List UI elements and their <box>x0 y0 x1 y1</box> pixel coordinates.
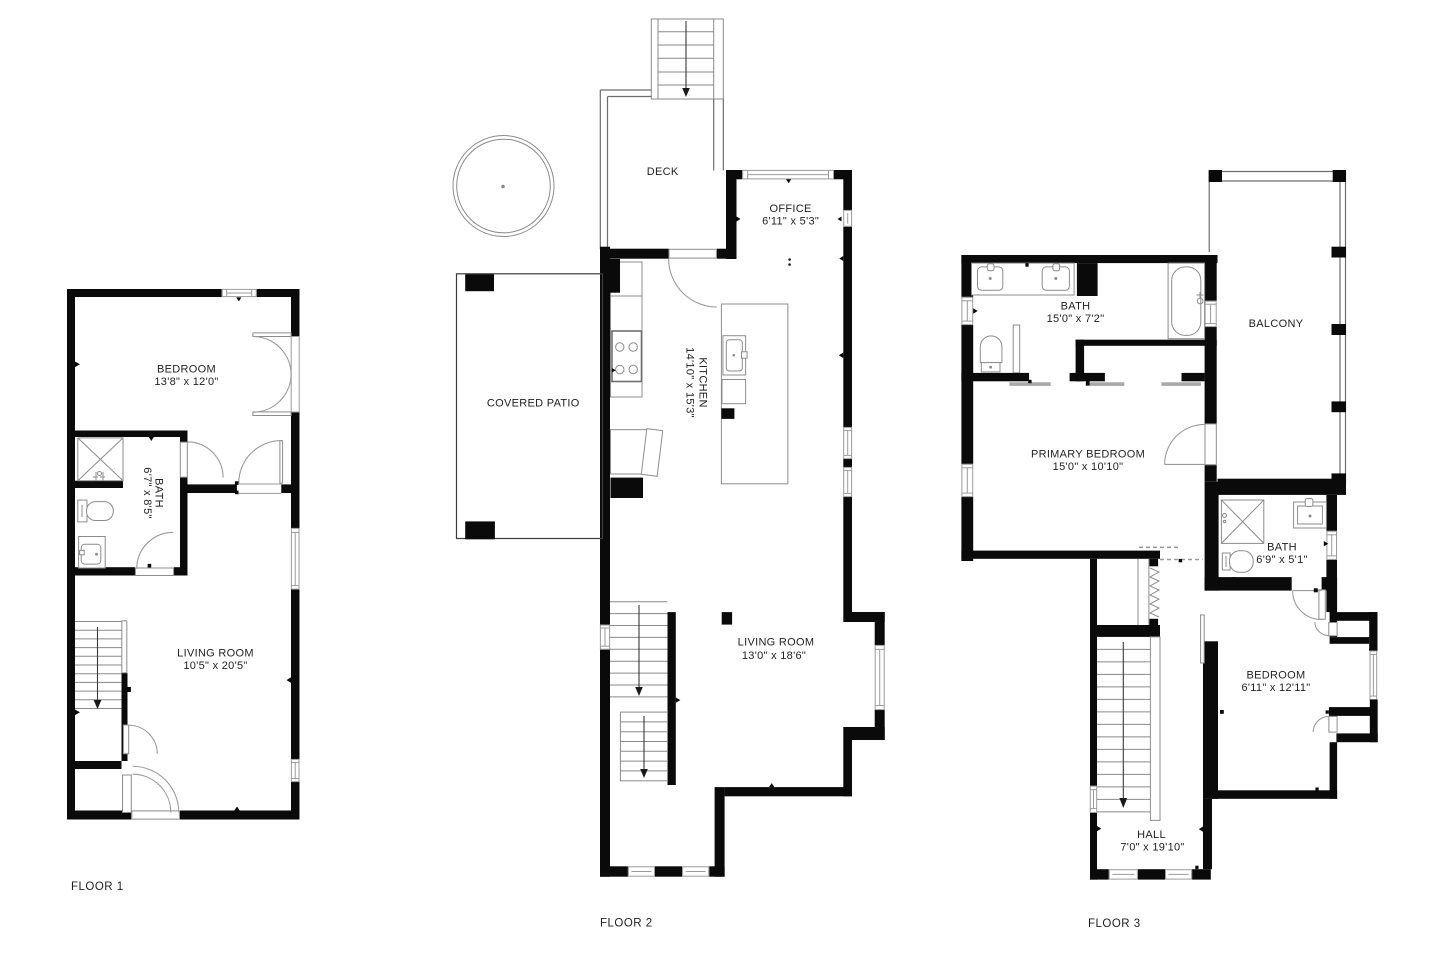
svg-text:6'11" x 12'11": 6'11" x 12'11" <box>1241 682 1310 694</box>
svg-text:FLOOR 3: FLOOR 3 <box>1088 918 1141 930</box>
svg-text:13'0" x 18'6": 13'0" x 18'6" <box>742 650 806 662</box>
svg-text:BALCONY: BALCONY <box>1249 318 1304 330</box>
svg-text:BATH: BATH <box>1267 542 1297 554</box>
svg-text:OFFICE: OFFICE <box>770 203 812 215</box>
svg-text:LIVING ROOM: LIVING ROOM <box>738 637 815 649</box>
svg-text:10'5" x 20'5": 10'5" x 20'5" <box>183 660 247 672</box>
svg-text:BEDROOM: BEDROOM <box>1247 670 1306 682</box>
svg-text:BEDROOM: BEDROOM <box>157 364 216 376</box>
svg-text:LIVING ROOM: LIVING ROOM <box>177 648 254 660</box>
svg-text:HALL: HALL <box>1137 829 1166 841</box>
svg-text:15'0" x 7'2": 15'0" x 7'2" <box>1047 313 1105 325</box>
svg-text:BATH: BATH <box>1061 301 1091 313</box>
svg-text:13'8" x 12'0": 13'8" x 12'0" <box>154 376 218 388</box>
svg-text:DECK: DECK <box>647 166 679 178</box>
svg-text:7'0" x 19'10": 7'0" x 19'10" <box>1120 842 1184 854</box>
svg-text:PRIMARY BEDROOM: PRIMARY BEDROOM <box>1031 449 1145 461</box>
svg-text:FLOOR 1: FLOOR 1 <box>71 881 124 893</box>
svg-text:KITCHEN14'10" x 15'3": KITCHEN14'10" x 15'3" <box>684 347 709 418</box>
svg-text:6'11" x 5'3": 6'11" x 5'3" <box>762 216 819 228</box>
svg-text:6'9" x 5'1": 6'9" x 5'1" <box>1256 554 1307 566</box>
svg-text:COVERED PATIO: COVERED PATIO <box>487 398 580 410</box>
svg-text:15'0" x 10'10": 15'0" x 10'10" <box>1053 461 1124 473</box>
svg-text:FLOOR 2: FLOOR 2 <box>600 918 653 930</box>
